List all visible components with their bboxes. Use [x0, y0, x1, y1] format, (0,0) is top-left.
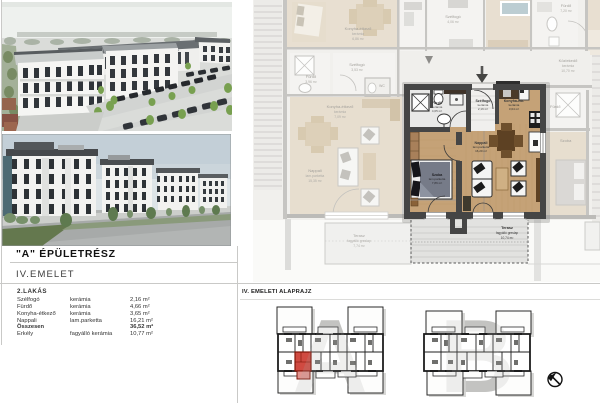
svg-text:6,86 m²: 6,86 m² — [352, 37, 364, 41]
svg-text:Fürdő: Fürdő — [561, 3, 572, 8]
svg-text:kerámia: kerámia — [562, 64, 574, 68]
svg-text:Konyha-étkező: Konyha-étkező — [345, 26, 372, 31]
svg-text:Szélfogó: Szélfogó — [445, 14, 461, 19]
svg-text:3,64 m²: 3,64 m² — [509, 107, 519, 111]
svg-text:Fürdő: Fürdő — [550, 104, 561, 109]
svg-text:B: B — [439, 300, 514, 403]
svg-text:Szoba: Szoba — [560, 138, 572, 143]
svg-text:lam.parketta: lam.parketta — [306, 174, 325, 178]
svg-text:3,96 m²: 3,96 m² — [305, 80, 317, 84]
svg-text:Terasz: Terasz — [501, 226, 513, 230]
svg-text:7,09 m²: 7,09 m² — [334, 115, 346, 119]
svg-text:WC: WC — [379, 84, 385, 88]
svg-text:10,70 m²: 10,70 m² — [561, 69, 575, 73]
svg-text:Nappali: Nappali — [308, 168, 322, 173]
svg-text:Konyha-étkező: Konyha-étkező — [327, 104, 354, 109]
svg-text:Közlekedő: Közlekedő — [559, 58, 578, 63]
svg-text:3,53 m²: 3,53 m² — [351, 68, 363, 72]
svg-text:Terasz: Terasz — [353, 233, 365, 238]
svg-text:7,86 m²: 7,86 m² — [432, 181, 442, 185]
svg-text:4,65 m²: 4,65 m² — [432, 109, 442, 113]
svg-text:10,74 m²: 10,74 m² — [501, 236, 514, 240]
svg-text:fagyálló greslap: fagyálló greslap — [496, 231, 519, 235]
svg-text:kerámia: kerámia — [352, 32, 364, 36]
svg-text:Szélfogó: Szélfogó — [349, 62, 365, 67]
svg-text:Fürdő: Fürdő — [306, 74, 317, 79]
svg-text:15,35 m²: 15,35 m² — [308, 179, 322, 183]
svg-text:16,20 m²: 16,20 m² — [475, 149, 487, 153]
svg-text:2,16 m²: 2,16 m² — [478, 107, 488, 111]
svg-text:A: A — [292, 300, 367, 403]
svg-text:4,06 m²: 4,06 m² — [447, 20, 459, 24]
svg-text:7,20 m²: 7,20 m² — [560, 9, 572, 13]
svg-text:kerámia: kerámia — [334, 110, 346, 114]
svg-text:7,74 m²: 7,74 m² — [353, 244, 365, 248]
